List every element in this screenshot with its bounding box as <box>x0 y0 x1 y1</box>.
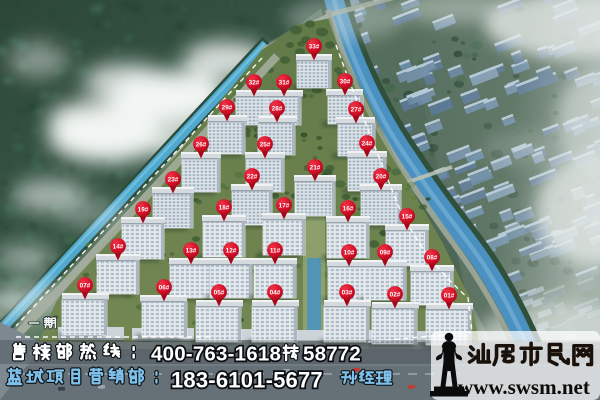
svg-text:07#: 07# <box>80 282 91 289</box>
svg-text:08#: 08# <box>427 254 438 261</box>
svg-text:17#: 17# <box>279 202 290 209</box>
svg-text:12#: 12# <box>226 247 237 254</box>
svg-text:23#: 23# <box>168 176 179 183</box>
svg-text:09#: 09# <box>380 249 391 256</box>
svg-text:03#: 03# <box>342 289 353 296</box>
svg-text:13#: 13# <box>186 247 197 254</box>
svg-text:24#: 24# <box>362 140 373 147</box>
svg-text:16#: 16# <box>343 205 354 212</box>
svg-text:400-763-1618: 400-763-1618 <box>151 343 281 366</box>
svg-text:58772: 58772 <box>303 343 361 366</box>
svg-text:01#: 01# <box>444 292 455 299</box>
svg-text:26#: 26# <box>196 141 207 148</box>
svg-text:19#: 19# <box>138 206 149 213</box>
svg-text:28#: 28# <box>272 105 283 112</box>
svg-text:29#: 29# <box>222 104 233 111</box>
svg-text:183-6101-5677: 183-6101-5677 <box>171 368 323 393</box>
svg-text:27#: 27# <box>351 106 362 113</box>
svg-text:05#: 05# <box>214 289 225 296</box>
svg-text:02#: 02# <box>390 291 401 298</box>
svg-text:20#: 20# <box>376 173 387 180</box>
svg-text:18#: 18# <box>219 204 230 211</box>
svg-text:25#: 25# <box>260 141 271 148</box>
svg-text:www.swsm.net: www.swsm.net <box>458 375 590 399</box>
svg-text:22#: 22# <box>247 173 258 180</box>
svg-text:21#: 21# <box>310 164 321 171</box>
svg-text:31#: 31# <box>279 79 290 86</box>
svg-text:06#: 06# <box>159 284 170 291</box>
svg-text:10#: 10# <box>344 249 355 256</box>
svg-text:11#: 11# <box>270 247 281 254</box>
svg-text:04#: 04# <box>270 289 281 296</box>
svg-text:33#: 33# <box>309 43 320 50</box>
svg-text:32#: 32# <box>249 79 260 86</box>
svg-text:14#: 14# <box>113 243 124 250</box>
svg-text:30#: 30# <box>340 78 351 85</box>
svg-text:15#: 15# <box>402 213 413 220</box>
